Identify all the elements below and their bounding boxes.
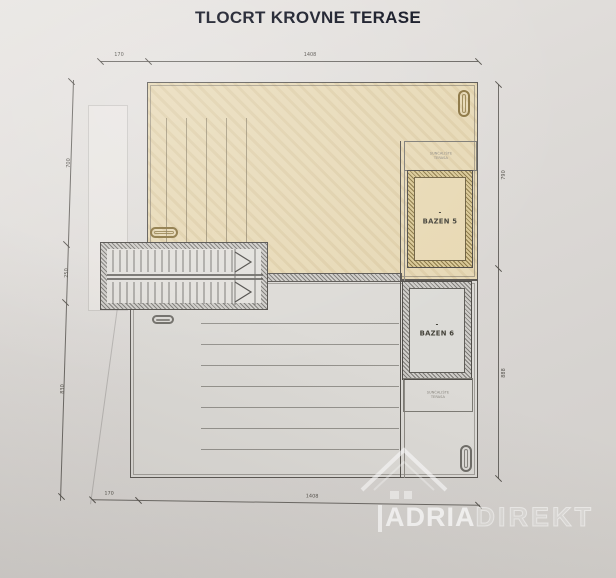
slope-lines-vertical: [166, 118, 248, 244]
annotation-box-lower: SUNČALIŠTE TERASA: [403, 378, 473, 412]
dimension-tick: [58, 493, 65, 500]
page-title: TLOCRT KROVNE TERASE: [0, 8, 616, 28]
dimension-value: 1408: [304, 493, 321, 499]
slope-lines-horizontal: [201, 323, 399, 451]
dimension-value: 888: [501, 365, 507, 382]
direction-chevron-icon: [235, 252, 251, 302]
scan-ghost-line: [90, 300, 119, 504]
dimension-tick: [68, 78, 75, 85]
annotation-text: SUNČALIŠTE TERASA: [427, 391, 449, 400]
stairwell: [100, 242, 268, 310]
depth-marker: -: [418, 211, 463, 215]
dimension-value: 830: [60, 381, 66, 398]
watermark-text: ADRIADIREKT: [385, 502, 594, 533]
brand-name-bold: ADRIA: [385, 502, 476, 532]
dimension-value: 250: [64, 265, 70, 282]
brand-name-light: DIREKT: [476, 502, 595, 532]
pool-6: - BAZEN 6: [409, 288, 465, 373]
pool-5-label: - BAZEN 5: [412, 210, 468, 228]
drain-pill-icon: [150, 227, 178, 238]
watermark: ADRIADIREKT: [350, 438, 616, 550]
dimension-line: [60, 80, 74, 501]
house-roof-icon: [360, 444, 460, 504]
dimension-value: 170: [101, 491, 118, 497]
annotation-box-upper: SUNČALIŠTE TERASA: [404, 141, 477, 171]
dimension-value: 170: [111, 52, 128, 58]
stair-flights: [107, 249, 261, 303]
watermark-bar: [378, 505, 382, 532]
pool-6-frame: - BAZEN 6: [402, 281, 472, 380]
stair-treads-svg: [107, 249, 263, 305]
dimension-line: [100, 61, 478, 62]
dimension-line: [498, 84, 499, 479]
pool-5: - BAZEN 5: [414, 177, 466, 261]
pool-6-label: - BAZEN 6: [409, 322, 465, 340]
dimension-value: 700: [66, 155, 72, 172]
drain-pill-icon: [458, 90, 470, 117]
dimension-value: 1408: [302, 52, 319, 58]
pool-5-frame: - BAZEN 5: [407, 170, 473, 268]
scanned-floor-plan-sheet: TLOCRT KROVNE TERASE SUNČALIŠTE TERASA -…: [0, 0, 616, 578]
terrace-divider-wall: [266, 273, 402, 282]
depth-marker: -: [415, 322, 460, 326]
drain-pill-icon: [152, 315, 174, 324]
annotation-text: SUNČALIŠTE TERASA: [429, 152, 451, 161]
dimension-value: 790: [501, 167, 507, 184]
